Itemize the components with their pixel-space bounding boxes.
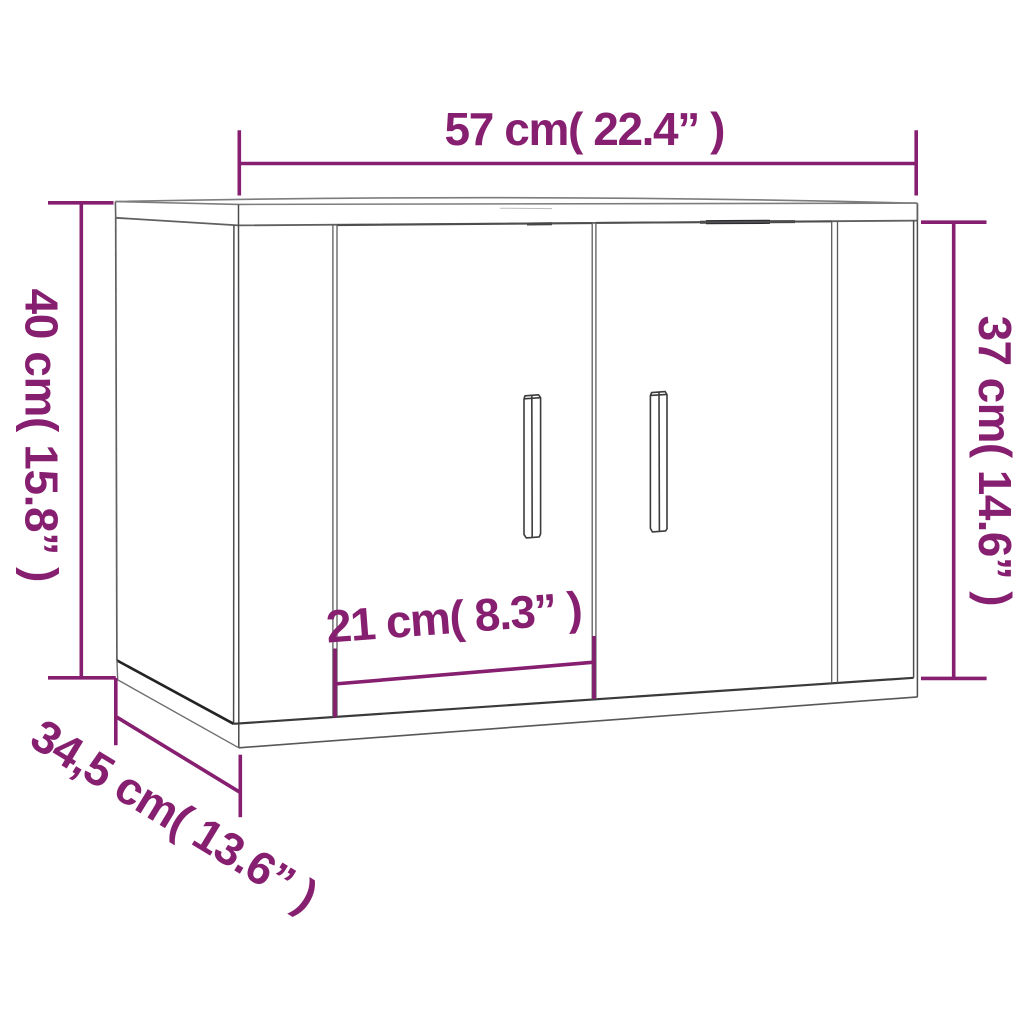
svg-text:57 cm( 22.4” ): 57 cm( 22.4” ) bbox=[445, 103, 726, 155]
svg-text:21 cm( 8.3” ): 21 cm( 8.3” ) bbox=[324, 581, 584, 652]
svg-text:40 cm( 15.8” ): 40 cm( 15.8” ) bbox=[16, 289, 68, 583]
svg-text:34,5 cm( 13.6” ): 34,5 cm( 13.6” ) bbox=[22, 709, 327, 922]
svg-text:37 cm( 14.6” ): 37 cm( 14.6” ) bbox=[969, 316, 1021, 607]
